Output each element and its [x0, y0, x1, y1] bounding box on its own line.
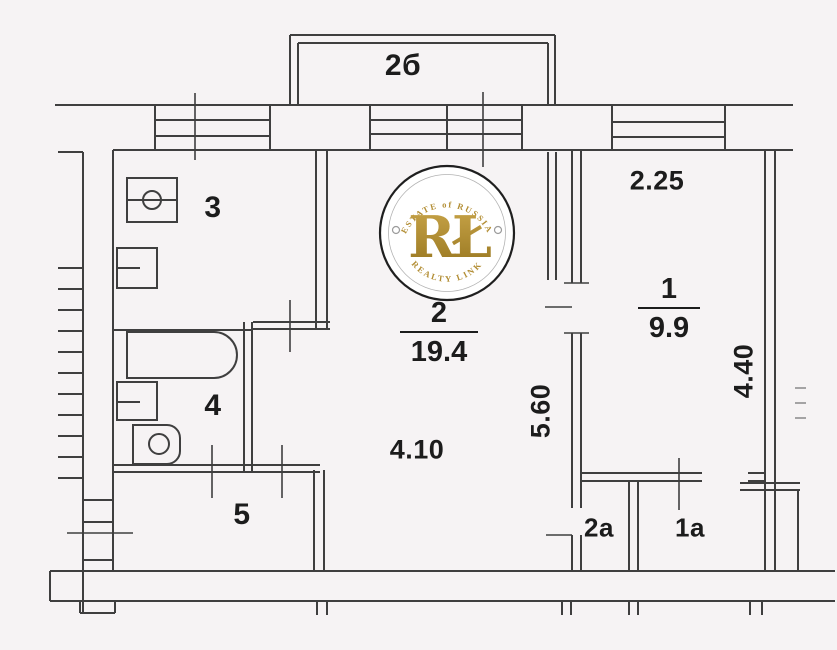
toilet-icon — [133, 425, 180, 464]
dimension-living-depth: 5.60 — [526, 384, 557, 439]
bathtub-icon — [127, 332, 237, 378]
bedroom-area: 9.9 — [649, 313, 689, 343]
door-marks-group — [67, 92, 679, 535]
watermark-logo: ESTATE of RUSSIA RŁ REALTY LINK — [380, 166, 514, 300]
dimension-bedroom-nook-width: 2.25 — [630, 166, 685, 197]
room-label-hallway: 5 — [233, 498, 250, 532]
dimension-living-width: 4.10 — [390, 435, 445, 466]
floor-plan-scan: ESTATE of RUSSIA RŁ REALTY LINK 2б 3 4 5… — [0, 0, 837, 650]
room-label-bathroom: 4 — [204, 389, 221, 423]
room-label-kitchen: 3 — [204, 191, 221, 225]
bedroom-number: 1 — [661, 274, 677, 304]
faint-scan-marks — [795, 388, 806, 418]
living-area: 19.4 — [411, 337, 467, 367]
balcony-label: 2б — [385, 49, 421, 83]
room-label-closet-1a: 1а — [675, 513, 705, 544]
room-label-closet-2a: 2а — [584, 513, 614, 544]
fraction-bar — [400, 331, 478, 333]
room-label-bedroom: 1 9.9 — [638, 274, 700, 344]
fraction-bar — [638, 307, 700, 309]
room-label-living: 2 19.4 — [400, 298, 478, 368]
toilet-bowl-icon — [149, 434, 169, 454]
living-number: 2 — [431, 298, 447, 328]
dimension-bedroom-depth: 4.40 — [729, 344, 760, 399]
